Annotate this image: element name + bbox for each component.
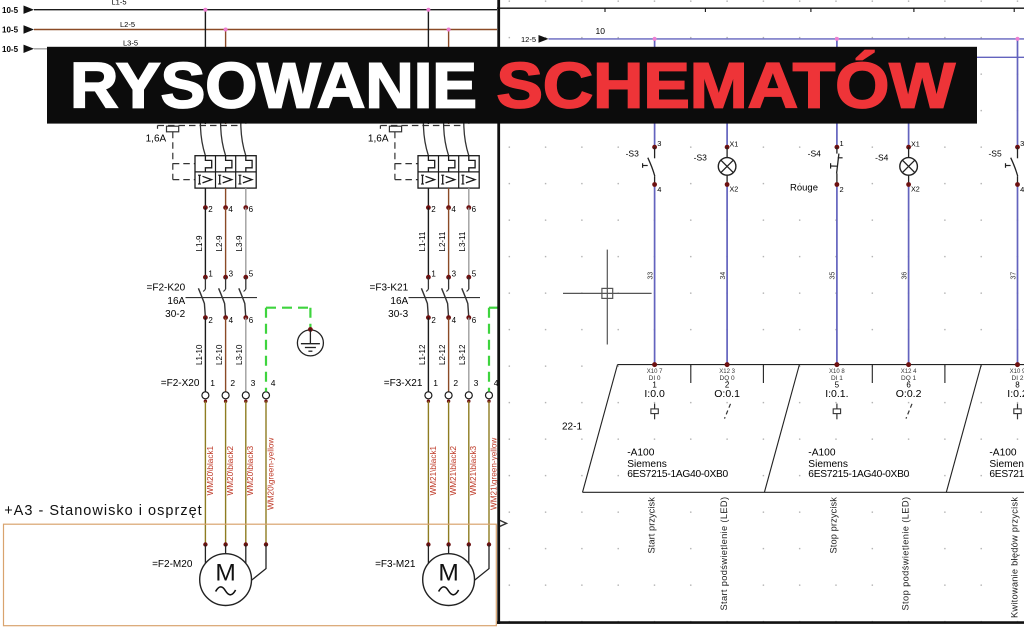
svg-text:I:0.2: I:0.2 [1007, 388, 1024, 400]
svg-text:37: 37 [1010, 272, 1017, 280]
svg-text:Stop podświetlenie (LED): Stop podświetlenie (LED) [900, 497, 910, 611]
svg-text:Start podświetlenie (LED): Start podświetlenie (LED) [719, 497, 729, 611]
svg-text:2: 2 [208, 316, 213, 325]
svg-text:L1-10: L1-10 [195, 344, 204, 365]
svg-text:2: 2 [431, 316, 436, 325]
svg-text:2: 2 [431, 205, 436, 214]
svg-text:L3-9: L3-9 [235, 235, 244, 252]
svg-text:33: 33 [647, 272, 654, 280]
svg-text:3: 3 [229, 270, 234, 279]
svg-text:4: 4 [451, 205, 456, 214]
svg-text:4: 4 [1020, 185, 1024, 194]
svg-text:L2-10: L2-10 [215, 344, 224, 365]
svg-text:3: 3 [1020, 139, 1024, 148]
svg-text:WM20\black2: WM20\black2 [226, 445, 235, 495]
svg-text:1,6A: 1,6A [146, 134, 167, 145]
svg-text:-S4: -S4 [808, 149, 822, 159]
svg-text:L1-12: L1-12 [418, 344, 427, 365]
svg-text:6: 6 [472, 205, 477, 214]
svg-text:6ES7215-1AG40-0XB0: 6ES7215-1AG40-0XB0 [989, 469, 1024, 480]
svg-text:16A: 16A [390, 296, 408, 307]
svg-text:L2-5: L2-5 [120, 20, 135, 29]
svg-text:6: 6 [249, 205, 254, 214]
svg-text:L3-11: L3-11 [458, 231, 467, 251]
svg-text:10-5: 10-5 [2, 6, 19, 15]
svg-text:16A: 16A [167, 296, 185, 307]
svg-text:L3-10: L3-10 [235, 344, 244, 365]
svg-text:=F3-M21: =F3-M21 [375, 559, 416, 570]
svg-text:X12 3: X12 3 [719, 369, 735, 375]
svg-text:6ES7215-1AG40-0XB0: 6ES7215-1AG40-0XB0 [627, 469, 728, 480]
svg-text:6: 6 [472, 316, 477, 325]
svg-text:L2-12: L2-12 [438, 344, 447, 365]
svg-text:WM20\green-yellow: WM20\green-yellow [266, 438, 275, 510]
svg-text:22-1: 22-1 [562, 422, 582, 433]
svg-text:L1-5: L1-5 [112, 0, 127, 7]
svg-text:=F3-K21: =F3-K21 [370, 283, 409, 294]
svg-text:3: 3 [251, 378, 256, 388]
svg-text:-S3: -S3 [626, 149, 640, 159]
svg-text:=F2-X20: =F2-X20 [161, 378, 200, 389]
svg-text:-A100: -A100 [808, 448, 836, 459]
svg-text:X1: X1 [911, 139, 920, 148]
svg-text:4: 4 [271, 378, 276, 388]
svg-text:10: 10 [596, 26, 606, 36]
svg-text:1: 1 [433, 378, 438, 388]
svg-text:35: 35 [830, 272, 837, 280]
svg-text:3: 3 [452, 270, 457, 279]
svg-text:=F3-X21: =F3-X21 [384, 378, 423, 389]
svg-text:X12 4: X12 4 [901, 369, 917, 375]
svg-text:=F2-M20: =F2-M20 [152, 559, 193, 570]
svg-text:4: 4 [452, 316, 457, 325]
svg-text:4: 4 [229, 316, 234, 325]
svg-text:WM20\black3: WM20\black3 [246, 445, 255, 495]
svg-text:L2-11: L2-11 [438, 231, 447, 251]
svg-text:I:0.1.: I:0.1. [825, 388, 848, 400]
svg-text:2: 2 [208, 205, 213, 214]
svg-text:1: 1 [840, 139, 844, 148]
svg-text:5: 5 [249, 270, 254, 279]
svg-text:X2: X2 [911, 185, 920, 194]
svg-text:SCHEMATÓW: SCHEMATÓW [497, 49, 956, 121]
svg-text:L3-5: L3-5 [123, 38, 138, 47]
svg-text:3: 3 [657, 139, 661, 148]
svg-text:WM21\black2: WM21\black2 [449, 445, 458, 495]
svg-text:L1-11: L1-11 [418, 231, 427, 251]
svg-text:10-5: 10-5 [2, 45, 19, 54]
svg-text:6ES7215-1AG40-0XB0: 6ES7215-1AG40-0XB0 [808, 469, 909, 480]
svg-text:Kwitowanie błędów przycisk: Kwitowanie błędów przycisk [1009, 497, 1019, 618]
svg-text:-S4: -S4 [875, 152, 889, 162]
svg-text:M: M [438, 560, 458, 587]
svg-text:O:0.2: O:0.2 [896, 388, 922, 400]
svg-text:L1-9: L1-9 [195, 235, 204, 252]
svg-text:WM21\black1: WM21\black1 [429, 445, 438, 495]
svg-text:WM21\black3: WM21\black3 [469, 445, 478, 495]
svg-text:Stop przycisk: Stop przycisk [829, 497, 839, 554]
svg-text:=F2-K20: =F2-K20 [147, 283, 186, 294]
svg-text:1: 1 [431, 270, 436, 279]
svg-text:34: 34 [720, 272, 727, 280]
svg-text:X10 9: X10 9 [1010, 369, 1024, 375]
svg-text:36: 36 [901, 272, 908, 280]
svg-text:6: 6 [249, 316, 254, 325]
svg-text:3: 3 [474, 378, 479, 388]
svg-text:-A100: -A100 [627, 448, 655, 459]
svg-text:L3-12: L3-12 [458, 344, 467, 365]
svg-text:+A3 - Stanowisko i osprzęt: +A3 - Stanowisko i osprzęt [4, 503, 202, 519]
svg-text:X10 8: X10 8 [829, 369, 845, 375]
svg-text:2: 2 [840, 185, 844, 194]
svg-text:2: 2 [230, 378, 235, 388]
svg-text:I:0.0: I:0.0 [644, 388, 665, 400]
svg-text:RYSOWANIE: RYSOWANIE [70, 49, 477, 121]
svg-text:12-5: 12-5 [521, 35, 536, 44]
svg-text:X2: X2 [730, 185, 739, 194]
svg-text:30-3: 30-3 [388, 309, 408, 320]
svg-text:-S3: -S3 [694, 152, 708, 162]
svg-text:WM21\green-yellow: WM21\green-yellow [489, 438, 498, 510]
svg-text:Start przycisk: Start przycisk [646, 497, 656, 554]
svg-text:-A100: -A100 [989, 448, 1017, 459]
svg-text:Rouge: Rouge [790, 182, 818, 193]
svg-text:5: 5 [472, 270, 477, 279]
svg-text:4: 4 [228, 205, 233, 214]
svg-text:1,6A: 1,6A [368, 134, 389, 145]
svg-text:X10 7: X10 7 [647, 369, 663, 375]
svg-text:O:0.1: O:0.1 [714, 388, 740, 400]
svg-text:X1: X1 [730, 139, 739, 148]
svg-text:M: M [215, 560, 235, 587]
svg-text:-S5: -S5 [988, 149, 1002, 159]
svg-text:1: 1 [208, 270, 213, 279]
svg-text:4: 4 [657, 185, 661, 194]
svg-text:L2-9: L2-9 [215, 235, 224, 252]
svg-text:2: 2 [453, 378, 458, 388]
svg-text:10-5: 10-5 [2, 26, 19, 35]
svg-text:1: 1 [210, 378, 215, 388]
svg-text:30-2: 30-2 [165, 309, 185, 320]
svg-text:WM20\black1: WM20\black1 [206, 445, 215, 495]
